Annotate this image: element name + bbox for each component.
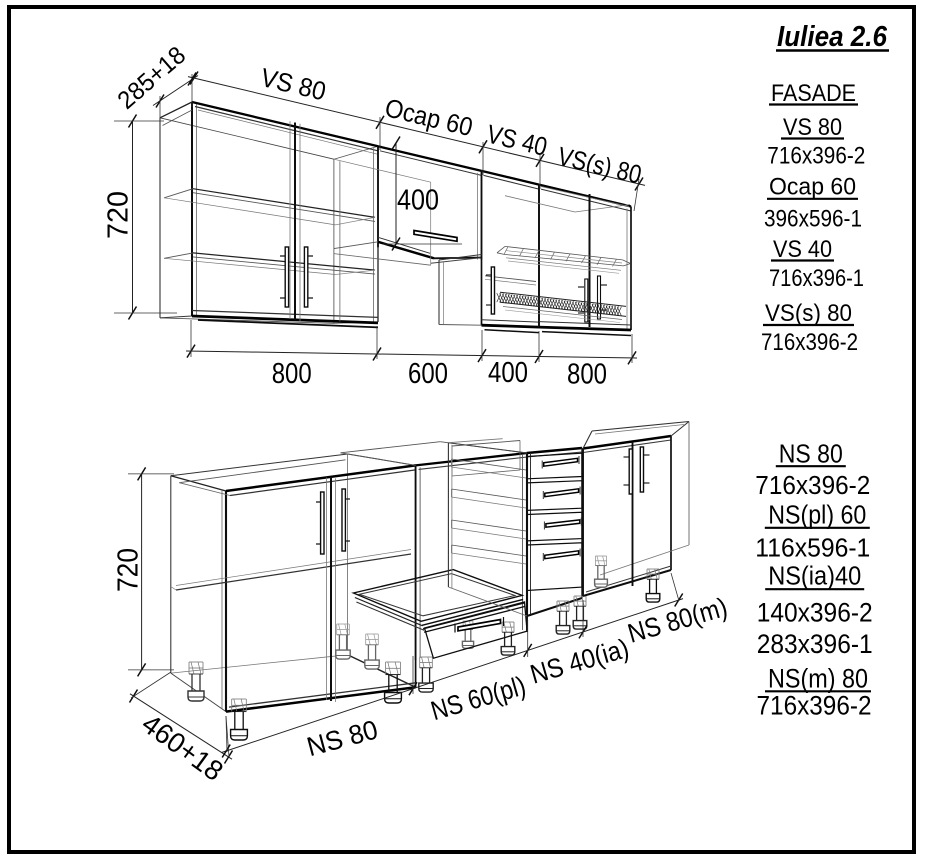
svg-text:716x396-2: 716x396-2 bbox=[755, 472, 870, 500]
svg-text:716x396-2: 716x396-2 bbox=[757, 691, 872, 721]
svg-text:720: 720 bbox=[113, 548, 145, 592]
svg-text:720: 720 bbox=[103, 191, 135, 239]
svg-text:NS(ia)40: NS(ia)40 bbox=[768, 563, 861, 591]
svg-text:800: 800 bbox=[272, 358, 312, 390]
svg-text:Ocap 60: Ocap 60 bbox=[769, 174, 856, 201]
svg-text:600: 600 bbox=[408, 358, 448, 390]
svg-text:VS 40: VS 40 bbox=[773, 236, 832, 263]
svg-text:400: 400 bbox=[397, 185, 439, 217]
svg-text:116x596-1: 116x596-1 bbox=[755, 535, 870, 563]
svg-text:Iuliea 2.6: Iuliea 2.6 bbox=[777, 21, 888, 53]
svg-text:716x396-2: 716x396-2 bbox=[767, 143, 865, 170]
svg-text:140x396-2: 140x396-2 bbox=[757, 598, 873, 628]
svg-text:716x396-2: 716x396-2 bbox=[761, 329, 858, 356]
svg-text:NS(m) 80: NS(m) 80 bbox=[768, 664, 868, 694]
svg-text:716x396-1: 716x396-1 bbox=[769, 265, 864, 292]
svg-text:800: 800 bbox=[567, 359, 607, 391]
svg-text:VS(s) 80: VS(s) 80 bbox=[765, 300, 852, 327]
svg-text:VS 80: VS 80 bbox=[783, 114, 842, 141]
svg-text:FASADE: FASADE bbox=[771, 80, 856, 107]
svg-text:283x396-1: 283x396-1 bbox=[757, 629, 873, 659]
svg-text:396x596-1: 396x596-1 bbox=[764, 206, 862, 233]
svg-text:NS(pl) 60: NS(pl) 60 bbox=[768, 502, 866, 530]
svg-text:400: 400 bbox=[488, 357, 528, 389]
svg-text:NS 80: NS 80 bbox=[779, 441, 843, 469]
